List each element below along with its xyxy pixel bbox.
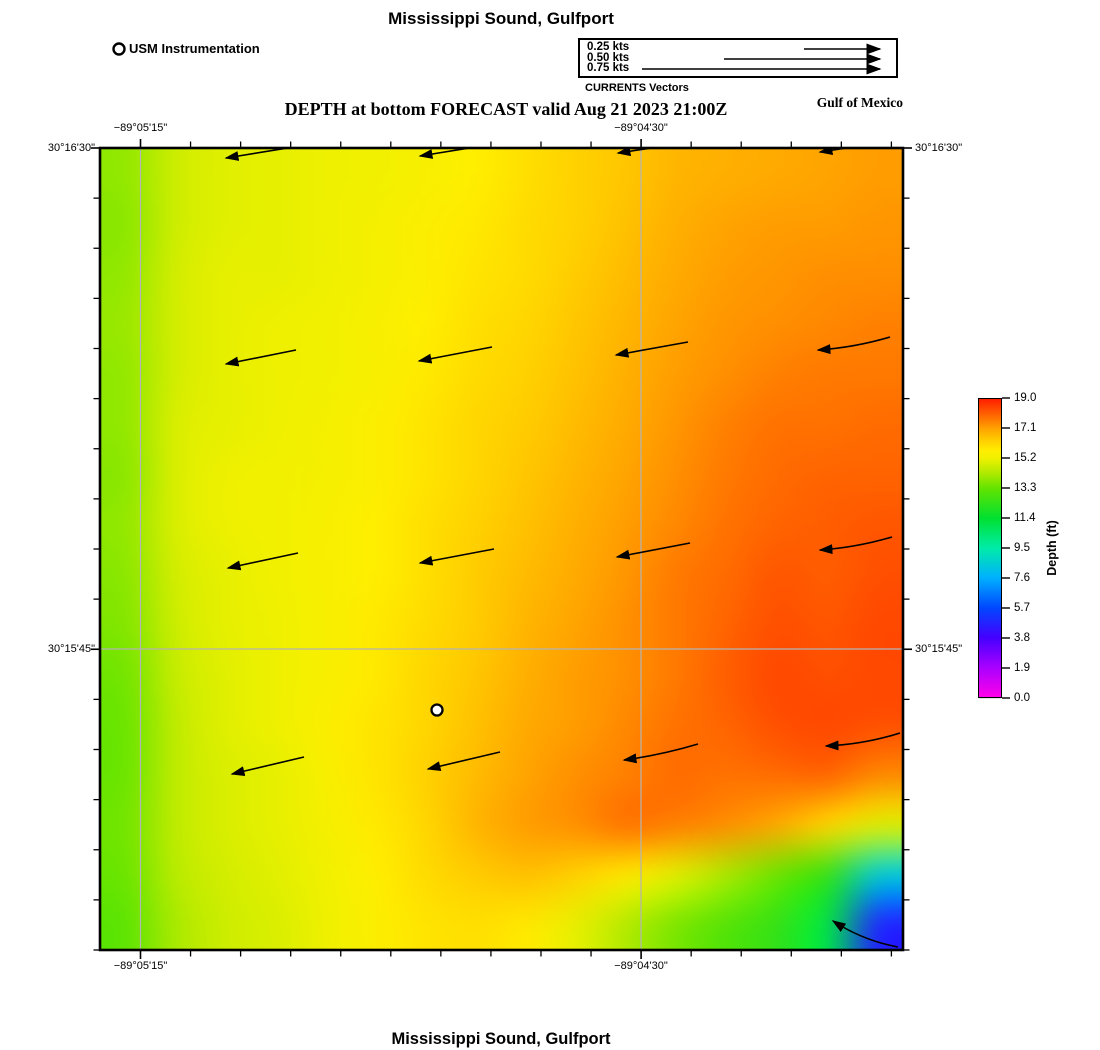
forecast-plot-page: Mississippi Sound, Gulfport USM Instrume… xyxy=(0,0,1100,1050)
colorbar-axis-label: Depth (ft) xyxy=(1045,520,1059,576)
current-vector xyxy=(428,752,500,769)
station-legend-label: USM Instrumentation xyxy=(129,41,260,56)
vector-legend-arrows xyxy=(580,40,895,76)
current-vector xyxy=(618,148,692,153)
current-vector xyxy=(420,148,494,156)
colorbar-tick-label: 9.5 xyxy=(1014,542,1030,554)
current-vector xyxy=(226,148,300,158)
vector-legend-title: CURRENTS Vectors xyxy=(585,82,689,94)
depth-colorbar xyxy=(978,398,1002,698)
colorbar-tick-label: 13.3 xyxy=(1014,482,1036,494)
colorbar-tick-label: 17.1 xyxy=(1014,422,1036,434)
depth-heatmap-panel xyxy=(100,148,903,950)
current-vector xyxy=(624,744,698,760)
station-marker-legend-icon xyxy=(111,41,127,57)
station-marker xyxy=(432,705,443,716)
longitude-label-bottom: −89°05'15" xyxy=(114,960,168,972)
current-vector xyxy=(833,921,898,947)
colorbar-tick-label: 7.6 xyxy=(1014,572,1030,584)
region-label: Gulf of Mexico xyxy=(757,95,903,111)
colorbar-tick-label: 5.7 xyxy=(1014,602,1030,614)
colorbar-tick-label: 11.4 xyxy=(1014,512,1036,524)
latitude-label-right: 30°16'30" xyxy=(915,142,962,154)
current-vector xyxy=(419,347,492,361)
current-vector xyxy=(232,757,304,774)
footer-title: Mississippi Sound, Gulfport xyxy=(391,1030,610,1049)
current-vector xyxy=(820,148,893,152)
current-vector xyxy=(617,543,690,557)
current-vector xyxy=(818,337,890,350)
longitude-label-bottom: −89°04'30" xyxy=(614,960,668,972)
colorbar-tick-label: 15.2 xyxy=(1014,452,1036,464)
colorbar-tick-label: 0.0 xyxy=(1014,692,1030,704)
colorbar-tick-label: 3.8 xyxy=(1014,632,1030,644)
longitude-label-top: −89°04'30" xyxy=(614,122,668,134)
latitude-label-left: 30°15'45" xyxy=(23,643,95,655)
page-title: Mississippi Sound, Gulfport xyxy=(388,9,614,29)
colorbar-tick-label: 19.0 xyxy=(1014,392,1036,404)
current-vector xyxy=(616,342,688,355)
latitude-label-right: 30°15'45" xyxy=(915,643,962,655)
current-vector-legend-box: 0.25 kts 0.50 kts 0.75 kts xyxy=(578,38,898,78)
map-overlay xyxy=(100,148,903,950)
current-vector xyxy=(226,350,296,364)
current-vector xyxy=(228,553,298,568)
current-vector xyxy=(820,537,892,550)
current-vector xyxy=(826,733,900,746)
longitude-label-top: −89°05'15" xyxy=(114,122,168,134)
colorbar-tick-label: 1.9 xyxy=(1014,662,1030,674)
latitude-label-left: 30°16'30" xyxy=(23,142,95,154)
forecast-subtitle: DEPTH at bottom FORECAST valid Aug 21 20… xyxy=(285,99,728,120)
current-vector xyxy=(420,549,494,563)
